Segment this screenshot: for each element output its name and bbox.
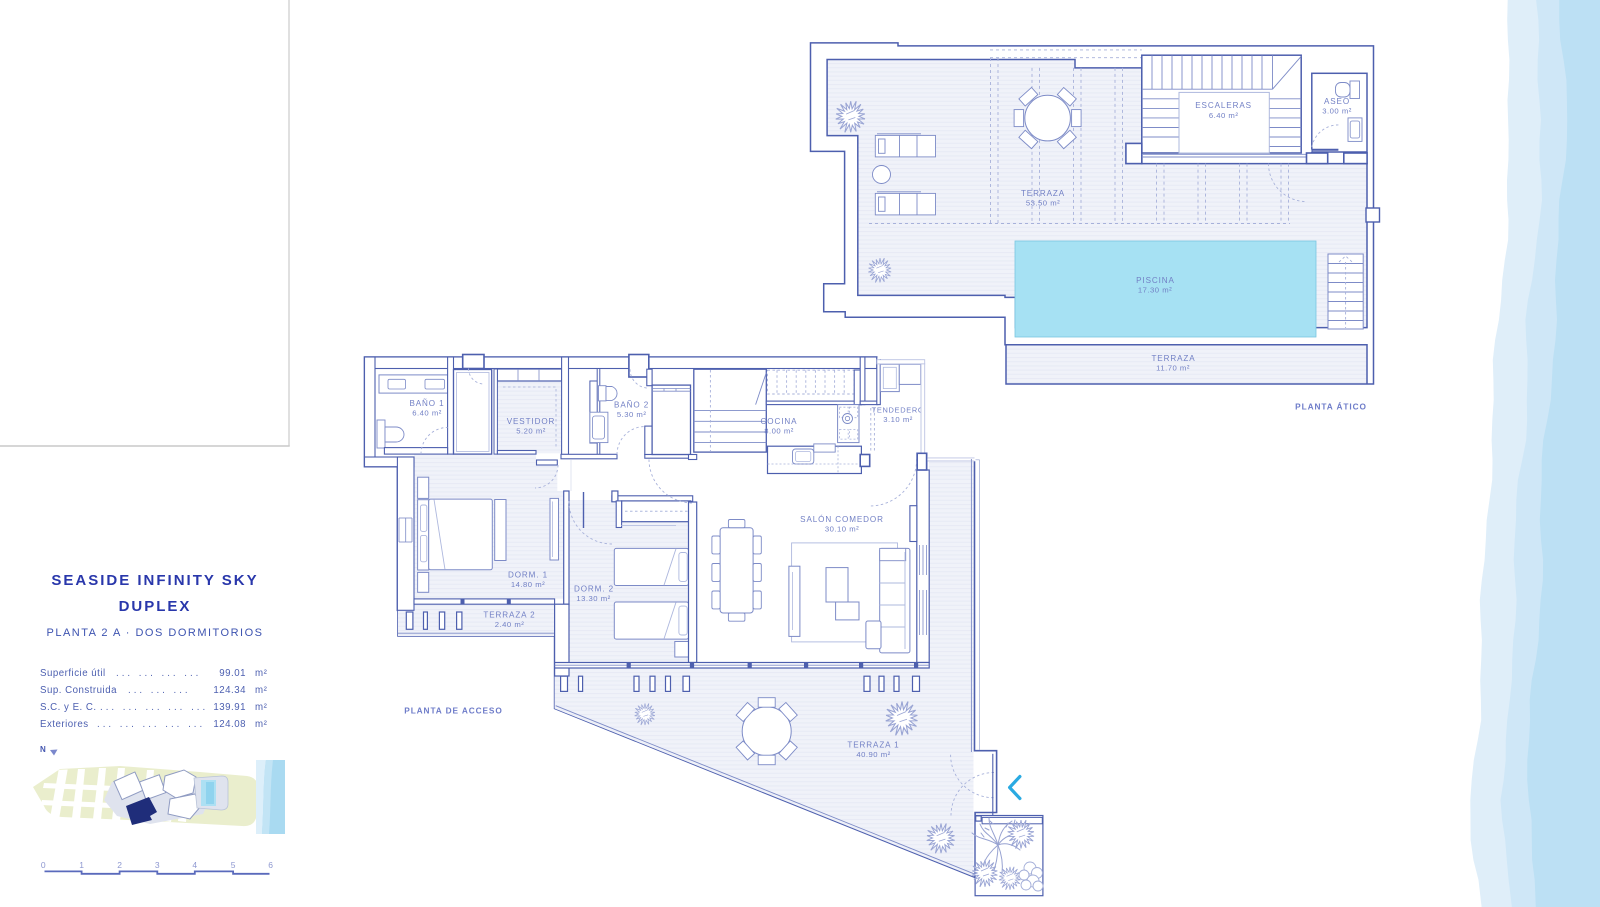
svg-text:DUPLEX: DUPLEX bbox=[119, 598, 192, 615]
svg-text:Exteriores: Exteriores bbox=[40, 719, 89, 730]
svg-text:1: 1 bbox=[79, 860, 84, 870]
svg-text:3.00 m²: 3.00 m² bbox=[1322, 107, 1352, 116]
svg-text:30.10 m²: 30.10 m² bbox=[825, 525, 859, 534]
svg-text:8.00 m²: 8.00 m² bbox=[764, 427, 794, 436]
svg-text:124.34: 124.34 bbox=[213, 685, 246, 696]
svg-text:17.30 m²: 17.30 m² bbox=[1138, 286, 1172, 295]
svg-text:m²: m² bbox=[255, 685, 268, 696]
svg-text:PLANTA DE ACCESO: PLANTA DE ACCESO bbox=[404, 706, 502, 716]
svg-text:VESTIDOR: VESTIDOR bbox=[507, 417, 556, 426]
svg-text:SEASIDE INFINITY SKY: SEASIDE INFINITY SKY bbox=[51, 572, 258, 589]
svg-text:TENDEDERO: TENDEDERO bbox=[872, 406, 925, 415]
svg-text:14.80 m²: 14.80 m² bbox=[511, 580, 545, 589]
svg-text:2: 2 bbox=[117, 860, 122, 870]
svg-text:6: 6 bbox=[268, 860, 273, 870]
svg-text:S.C. y E. C.: S.C. y E. C. bbox=[40, 702, 97, 713]
svg-text:13.30 m²: 13.30 m² bbox=[576, 594, 610, 603]
svg-text:m²: m² bbox=[255, 702, 268, 713]
svg-text:TERRAZA: TERRAZA bbox=[1151, 354, 1195, 363]
svg-text:N: N bbox=[40, 745, 46, 754]
svg-text:99.01: 99.01 bbox=[219, 668, 246, 679]
svg-text:TERRAZA 2: TERRAZA 2 bbox=[483, 611, 535, 620]
svg-text:... ... ... ... ...: ... ... ... ... ... bbox=[97, 719, 205, 730]
svg-text:124.08: 124.08 bbox=[213, 719, 246, 730]
svg-text:0: 0 bbox=[41, 860, 46, 870]
svg-text:... ... ...: ... ... ... bbox=[128, 685, 191, 696]
svg-text:... ... ... ... ...: ... ... ... ... ... bbox=[100, 702, 208, 713]
svg-text:53.50 m²: 53.50 m² bbox=[1026, 199, 1060, 208]
svg-text:PLANTA 2 A · DOS DORMITORIOS: PLANTA 2 A · DOS DORMITORIOS bbox=[46, 627, 263, 639]
svg-text:BAÑO 1: BAÑO 1 bbox=[409, 399, 444, 408]
svg-text:4: 4 bbox=[192, 860, 197, 870]
svg-text:m²: m² bbox=[255, 668, 268, 679]
svg-text:m²: m² bbox=[255, 719, 268, 730]
svg-text:DORM. 2: DORM. 2 bbox=[574, 585, 614, 594]
svg-text:TERRAZA: TERRAZA bbox=[1021, 189, 1065, 198]
svg-text:5.20 m²: 5.20 m² bbox=[516, 427, 546, 436]
svg-text:PISCINA: PISCINA bbox=[1136, 276, 1175, 285]
svg-text:3: 3 bbox=[155, 860, 160, 870]
svg-text:ESCALERAS: ESCALERAS bbox=[1195, 101, 1252, 110]
svg-text:ASEO: ASEO bbox=[1324, 97, 1350, 106]
svg-text:COCINA: COCINA bbox=[761, 417, 798, 426]
svg-text:Superficie útil: Superficie útil bbox=[40, 668, 106, 679]
svg-text:6.40 m²: 6.40 m² bbox=[1209, 111, 1239, 120]
svg-text:40.90 m²: 40.90 m² bbox=[856, 750, 890, 759]
svg-text:139.91: 139.91 bbox=[213, 702, 246, 713]
svg-text:2.40 m²: 2.40 m² bbox=[495, 620, 525, 629]
svg-text:SALÓN COMEDOR: SALÓN COMEDOR bbox=[800, 515, 884, 524]
svg-text:6.40 m²: 6.40 m² bbox=[412, 409, 442, 418]
svg-text:3.10 m²: 3.10 m² bbox=[883, 415, 913, 424]
svg-text:5: 5 bbox=[231, 860, 236, 870]
svg-text:DORM. 1: DORM. 1 bbox=[508, 571, 548, 580]
svg-text:PLANTA ÁTICO: PLANTA ÁTICO bbox=[1295, 402, 1367, 412]
svg-text:5.30 m²: 5.30 m² bbox=[617, 410, 647, 419]
svg-text:BAÑO 2: BAÑO 2 bbox=[614, 401, 649, 410]
svg-text:11.70 m²: 11.70 m² bbox=[1156, 364, 1190, 373]
svg-text:Sup. Construida: Sup. Construida bbox=[40, 685, 117, 696]
svg-text:... ... ... ...: ... ... ... ... bbox=[116, 668, 201, 679]
svg-text:TERRAZA 1: TERRAZA 1 bbox=[847, 741, 899, 750]
